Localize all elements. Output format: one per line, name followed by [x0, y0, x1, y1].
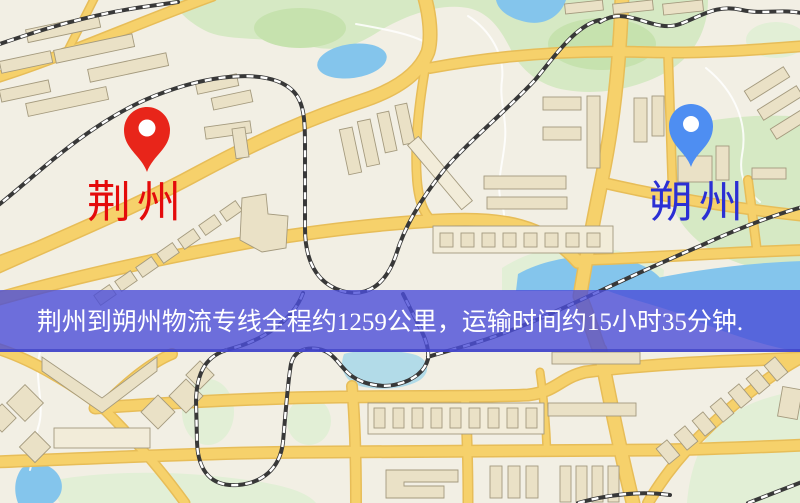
- building: [566, 233, 579, 247]
- park-area: [254, 8, 346, 48]
- building: [469, 408, 480, 428]
- building: [482, 233, 495, 247]
- building: [431, 408, 442, 428]
- origin-label: 荆州: [87, 178, 187, 227]
- map-canvas[interactable]: 荆州到朔州物流专线全程约1259公里，运输时间约15小时35分钟. 荆州 朔州: [0, 0, 800, 503]
- building: [526, 408, 537, 428]
- building: [752, 168, 786, 179]
- building: [461, 233, 474, 247]
- building: [503, 233, 516, 247]
- building: [587, 96, 600, 168]
- building: [543, 97, 581, 110]
- building: [587, 233, 600, 247]
- building: [508, 466, 520, 498]
- building: [484, 176, 566, 189]
- destination-label: 朔州: [649, 178, 749, 227]
- origin-pin-hole: [139, 120, 156, 137]
- building: [450, 408, 461, 428]
- route-banner-text: 荆州到朔州物流专线全程约1259公里，运输时间约15小时35分钟.: [37, 308, 743, 336]
- building: [548, 403, 636, 416]
- building: [634, 98, 647, 142]
- building: [393, 408, 404, 428]
- building: [543, 127, 581, 140]
- road: [352, 386, 356, 503]
- building: [552, 352, 640, 364]
- building: [488, 408, 499, 428]
- building: [716, 146, 729, 180]
- building: [560, 466, 571, 502]
- building: [545, 233, 558, 247]
- map-screenshot: 荆州到朔州物流专线全程约1259公里，运输时间约15小时35分钟. 荆州 朔州: [0, 0, 800, 503]
- building: [54, 428, 150, 448]
- route-banner-edge: [0, 349, 800, 352]
- building: [440, 233, 453, 247]
- building: [524, 233, 537, 247]
- building: [487, 197, 567, 209]
- building: [507, 408, 518, 428]
- route-banner: 荆州到朔州物流专线全程约1259公里，运输时间约15小时35分钟.: [0, 290, 800, 352]
- building-compound: [433, 226, 613, 253]
- destination-pin-hole: [683, 116, 699, 132]
- building: [374, 408, 385, 428]
- building: [412, 408, 423, 428]
- building: [576, 466, 587, 502]
- building: [526, 466, 538, 498]
- building: [490, 466, 502, 498]
- building: [652, 96, 664, 136]
